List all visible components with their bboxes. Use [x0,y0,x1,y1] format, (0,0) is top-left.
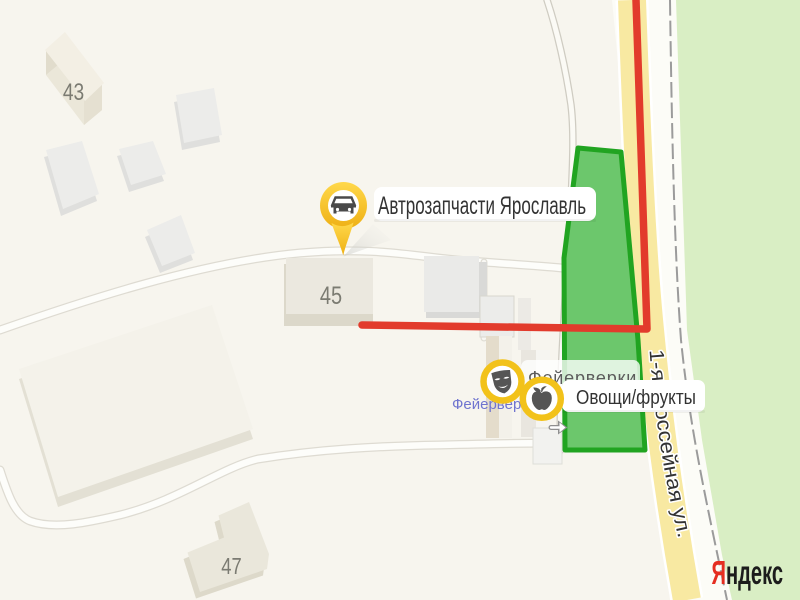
svg-text:45: 45 [320,282,342,310]
svg-text:Автрозапчасти Ярославль: Автрозапчасти Ярославль [378,192,586,220]
svg-text:43: 43 [63,78,84,106]
svg-text:Овощи/фрукты: Овощи/фрукты [576,386,696,409]
svg-text:47: 47 [221,554,241,579]
svg-text:Яндекс: Яндекс [712,554,784,591]
